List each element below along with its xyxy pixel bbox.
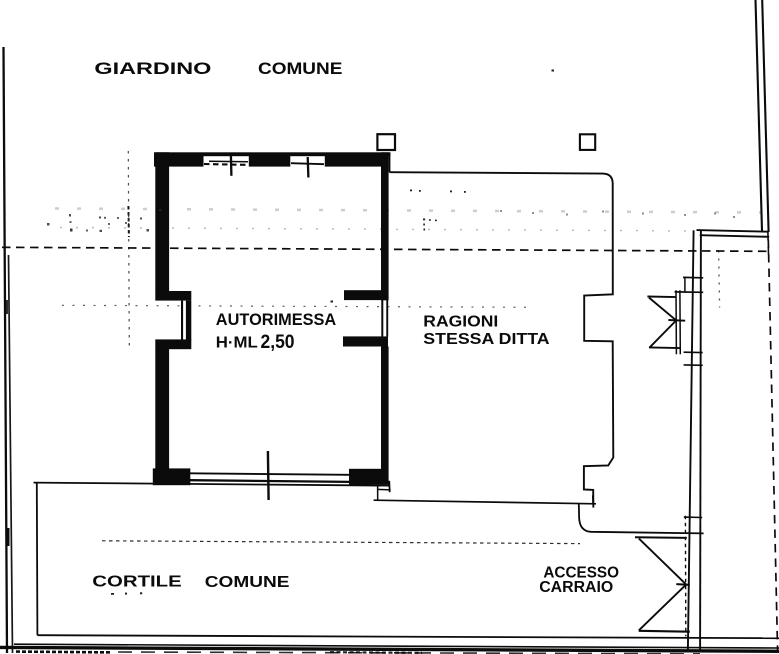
svg-text:H·ML: H·ML <box>216 335 258 352</box>
svg-text:CARRAIO: CARRAIO <box>539 579 613 596</box>
svg-text:STESSA DITTA: STESSA DITTA <box>423 331 550 348</box>
svg-text:COMUNE: COMUNE <box>205 574 290 591</box>
svg-text:CORTILE: CORTILE <box>92 573 182 590</box>
svg-text:AUTORIMESSA: AUTORIMESSA <box>216 311 336 329</box>
svg-text:COMUNE: COMUNE <box>258 59 342 78</box>
svg-text:GIARDINO: GIARDINO <box>94 59 211 78</box>
svg-text:RAGIONI: RAGIONI <box>423 313 498 330</box>
svg-text:2,50: 2,50 <box>261 332 295 353</box>
